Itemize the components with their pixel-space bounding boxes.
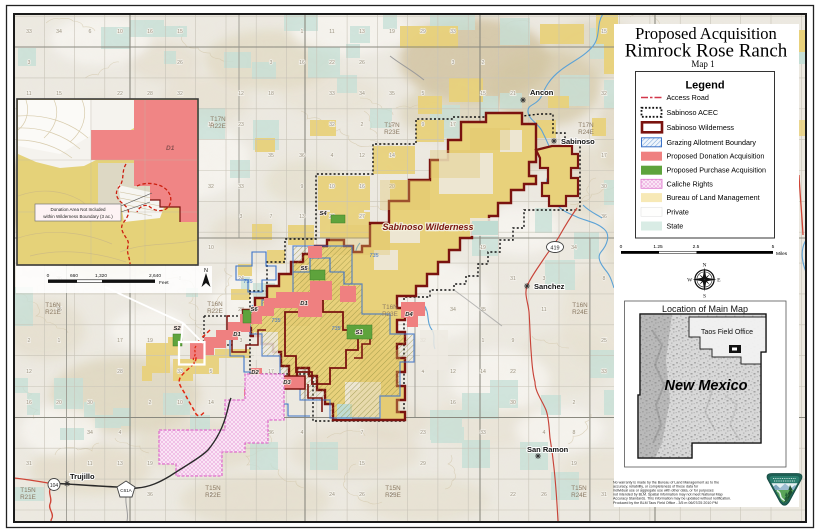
svg-text:Proposed Purchase Acquisition: Proposed Purchase Acquisition [667, 166, 767, 175]
svg-text:735: 735 [243, 279, 253, 285]
svg-text:18: 18 [268, 91, 274, 97]
svg-text:Produced by the BLM Taos Field: Produced by the BLM Taos Field Office - … [613, 501, 718, 505]
svg-text:New Mexico: New Mexico [665, 378, 748, 394]
svg-text:660: 660 [70, 273, 78, 279]
svg-text:31: 31 [26, 461, 32, 467]
svg-text:Private: Private [667, 207, 689, 216]
svg-text:T16N: T16N [45, 302, 61, 309]
svg-text:S6: S6 [250, 307, 258, 313]
svg-text:33: 33 [329, 91, 335, 97]
svg-text:D1: D1 [300, 301, 307, 307]
svg-text:R23E: R23E [384, 129, 400, 136]
svg-text:Taos Field Office: Taos Field Office [701, 329, 753, 336]
svg-text:Sabinoso ACEC: Sabinoso ACEC [667, 108, 719, 117]
svg-text:5: 5 [210, 369, 213, 375]
svg-text:5: 5 [422, 91, 425, 97]
svg-text:12: 12 [359, 153, 365, 159]
svg-text:12: 12 [450, 369, 456, 375]
svg-text:35: 35 [268, 153, 274, 159]
svg-text:11: 11 [87, 461, 92, 467]
svg-text:T15N: T15N [571, 485, 587, 492]
svg-text:C61A: C61A [120, 488, 132, 493]
svg-text:20: 20 [56, 400, 62, 406]
svg-text:33: 33 [480, 430, 486, 436]
svg-text:3: 3 [270, 60, 273, 66]
svg-text:16: 16 [299, 60, 305, 66]
svg-text:4: 4 [301, 430, 304, 436]
svg-text:T17N: T17N [210, 116, 226, 123]
svg-text:R21E: R21E [20, 494, 36, 501]
svg-text:19: 19 [480, 245, 486, 251]
svg-text:0: 0 [620, 244, 623, 250]
svg-text:Access Road: Access Road [667, 93, 709, 102]
svg-text:35: 35 [389, 91, 395, 97]
svg-text:33: 33 [450, 29, 456, 35]
svg-text:14: 14 [480, 369, 486, 375]
svg-text:1: 1 [58, 338, 61, 344]
svg-text:10: 10 [329, 184, 335, 190]
svg-text:Sabinoso Wilderness: Sabinoso Wilderness [383, 222, 474, 232]
svg-text:E: E [717, 278, 721, 284]
svg-text:33: 33 [601, 369, 607, 375]
svg-text:Sabinoso Wilderness: Sabinoso Wilderness [667, 123, 735, 132]
svg-text:9: 9 [422, 122, 425, 128]
svg-text:Sanchez: Sanchez [534, 282, 565, 291]
svg-text:S4: S4 [319, 211, 327, 217]
svg-text:2,640: 2,640 [149, 273, 161, 279]
svg-text:D3: D3 [283, 380, 291, 386]
svg-text:1: 1 [301, 29, 304, 35]
svg-text:19: 19 [389, 29, 395, 35]
svg-text:S2: S2 [173, 326, 181, 332]
svg-text:34: 34 [56, 29, 62, 35]
svg-text:T17N: T17N [578, 122, 594, 129]
svg-text:5: 5 [772, 244, 775, 250]
svg-text:Bureau of Land Management: Bureau of Land Management [667, 193, 760, 202]
svg-text:Legend: Legend [685, 80, 724, 92]
svg-text:32: 32 [208, 184, 214, 190]
svg-text:R23E: R23E [385, 492, 401, 499]
svg-text:15: 15 [480, 91, 486, 97]
svg-text:within Wilderness Boundary (3: within Wilderness Boundary (3 ac.) [43, 214, 113, 219]
svg-text:Ancon: Ancon [530, 88, 554, 97]
svg-text:Caliche Rights: Caliche Rights [667, 179, 714, 188]
svg-text:1,320: 1,320 [95, 273, 107, 279]
svg-text:26: 26 [359, 492, 365, 498]
svg-text:Location of Main Map: Location of Main Map [662, 304, 748, 314]
svg-text:S1: S1 [355, 330, 362, 336]
svg-text:36: 36 [268, 430, 274, 436]
svg-text:23: 23 [238, 122, 244, 128]
svg-text:17: 17 [117, 338, 123, 344]
svg-text:23: 23 [420, 430, 426, 436]
svg-text:34: 34 [359, 91, 365, 97]
svg-text:11: 11 [329, 29, 334, 35]
svg-text:13: 13 [359, 29, 365, 35]
svg-text:31: 31 [510, 276, 516, 282]
svg-text:34: 34 [450, 307, 456, 313]
svg-text:36: 36 [601, 214, 607, 220]
svg-text:W: W [687, 278, 693, 284]
svg-text:14: 14 [389, 153, 395, 159]
svg-text:4: 4 [331, 153, 334, 159]
svg-text:2: 2 [573, 400, 576, 406]
svg-text:12: 12 [26, 369, 32, 375]
svg-text:22: 22 [510, 369, 516, 375]
svg-text:24: 24 [329, 492, 335, 498]
svg-text:30: 30 [510, 400, 516, 406]
svg-text:13: 13 [117, 461, 123, 467]
svg-text:R22E: R22E [207, 308, 223, 315]
svg-text:2: 2 [482, 60, 485, 66]
svg-text:Map 1: Map 1 [691, 59, 714, 69]
svg-text:36: 36 [299, 153, 305, 159]
svg-text:R23E: R23E [382, 311, 398, 318]
svg-text:R22E: R22E [210, 123, 226, 130]
svg-text:33: 33 [26, 29, 32, 35]
svg-text:32: 32 [177, 91, 183, 97]
svg-text:735: 735 [271, 318, 281, 324]
svg-text:19: 19 [147, 338, 153, 344]
svg-text:12: 12 [238, 91, 244, 97]
svg-text:22: 22 [117, 91, 123, 97]
svg-text:29: 29 [420, 461, 426, 467]
svg-text:1: 1 [482, 338, 485, 344]
svg-text:9: 9 [512, 338, 515, 344]
svg-text:11: 11 [26, 91, 31, 97]
svg-text:25: 25 [601, 338, 607, 344]
svg-text:3: 3 [240, 338, 243, 344]
svg-text:15: 15 [601, 29, 607, 35]
svg-text:16: 16 [147, 29, 153, 35]
svg-text:30: 30 [87, 400, 93, 406]
svg-text:6: 6 [89, 29, 92, 35]
svg-text:11: 11 [541, 307, 546, 313]
svg-text:San Ramon: San Ramon [527, 445, 569, 454]
svg-text:R24E: R24E [571, 492, 587, 499]
svg-text:Miles: Miles [776, 251, 788, 257]
svg-text:19: 19 [571, 461, 577, 467]
svg-text:T16N: T16N [207, 301, 223, 308]
svg-text:419: 419 [550, 245, 559, 251]
svg-text:N: N [702, 262, 706, 268]
svg-text:29: 29 [420, 29, 426, 35]
svg-text:3: 3 [28, 60, 31, 66]
svg-text:3: 3 [240, 214, 243, 220]
svg-text:8: 8 [573, 430, 576, 436]
svg-text:4: 4 [119, 430, 122, 436]
svg-text:2: 2 [28, 338, 31, 344]
svg-text:21: 21 [510, 91, 516, 97]
svg-text:3: 3 [452, 60, 455, 66]
svg-text:9: 9 [301, 184, 304, 190]
svg-text:32: 32 [329, 122, 335, 128]
svg-text:1.25: 1.25 [653, 244, 663, 250]
svg-text:S5: S5 [300, 266, 308, 272]
svg-text:Donation Area Not Included: Donation Area Not Included [50, 207, 106, 212]
svg-text:10: 10 [208, 245, 214, 251]
svg-text:14: 14 [208, 400, 214, 406]
svg-text:31: 31 [601, 492, 607, 498]
svg-text:16: 16 [359, 184, 365, 190]
svg-text:26: 26 [541, 492, 547, 498]
svg-text:Sabinoso: Sabinoso [561, 137, 595, 146]
svg-text:33: 33 [238, 184, 244, 190]
svg-text:15: 15 [177, 29, 183, 35]
svg-text:10: 10 [117, 29, 123, 35]
svg-text:17: 17 [450, 122, 456, 128]
svg-text:State: State [667, 222, 684, 231]
svg-text:28: 28 [147, 91, 153, 97]
svg-text:R24E: R24E [578, 129, 594, 136]
svg-text:27: 27 [359, 214, 365, 220]
svg-text:T15N: T15N [385, 485, 401, 492]
svg-text:8: 8 [603, 276, 606, 282]
svg-text:30: 30 [601, 184, 607, 190]
svg-text:T16N: T16N [382, 304, 398, 311]
svg-text:D2: D2 [251, 370, 259, 376]
svg-text:S: S [703, 294, 706, 300]
svg-text:28: 28 [117, 369, 123, 375]
svg-text:735: 735 [331, 326, 341, 332]
svg-text:7: 7 [361, 430, 364, 436]
svg-text:16: 16 [26, 400, 32, 406]
svg-text:16: 16 [450, 400, 456, 406]
svg-text:Feet: Feet [159, 280, 169, 286]
svg-text:D1: D1 [166, 145, 175, 152]
svg-text:R24E: R24E [572, 309, 588, 316]
svg-text:36: 36 [147, 492, 153, 498]
svg-text:T15N: T15N [205, 485, 221, 492]
svg-text:7: 7 [270, 214, 273, 220]
svg-text:Grazing Allotment Boundary: Grazing Allotment Boundary [667, 138, 757, 147]
svg-text:104: 104 [50, 483, 59, 489]
svg-text:2: 2 [149, 400, 152, 406]
svg-text:Trujillo: Trujillo [70, 472, 95, 481]
svg-text:17: 17 [601, 153, 607, 159]
svg-text:26: 26 [359, 60, 365, 66]
svg-text:T16N: T16N [572, 302, 588, 309]
svg-text:T15N: T15N [20, 487, 36, 494]
svg-text:13: 13 [299, 214, 305, 220]
svg-text:10: 10 [177, 400, 183, 406]
svg-text:15: 15 [56, 91, 62, 97]
svg-text:34: 34 [87, 430, 93, 436]
svg-text:T17N: T17N [384, 122, 400, 129]
svg-text:2.5: 2.5 [693, 244, 700, 250]
svg-text:22: 22 [329, 60, 335, 66]
svg-text:4: 4 [543, 430, 546, 436]
svg-text:Proposed Donation Acquisition: Proposed Donation Acquisition [667, 152, 765, 161]
svg-text:R22E: R22E [205, 492, 221, 499]
svg-text:32: 32 [601, 91, 607, 97]
svg-text:2: 2 [361, 122, 364, 128]
svg-text:34: 34 [571, 245, 577, 251]
svg-text:735: 735 [369, 253, 379, 259]
svg-text:19: 19 [147, 461, 153, 467]
svg-text:D1: D1 [233, 332, 240, 338]
svg-text:15: 15 [359, 461, 365, 467]
svg-text:0: 0 [47, 273, 50, 279]
svg-text:22: 22 [510, 492, 516, 498]
svg-text:26: 26 [177, 60, 183, 66]
svg-text:R21E: R21E [45, 309, 61, 316]
svg-text:D4: D4 [405, 312, 413, 318]
